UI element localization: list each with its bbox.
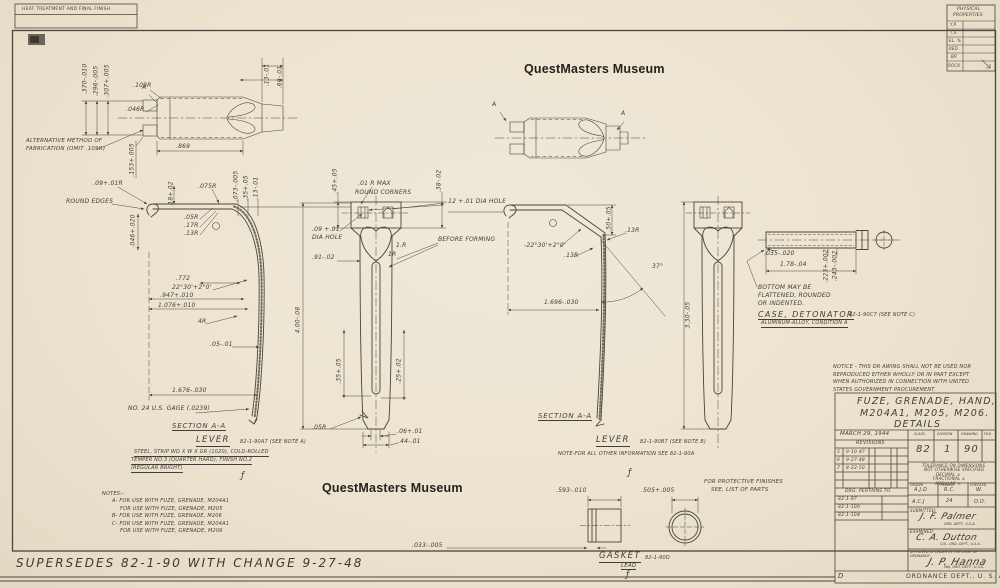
dim-label: .370-.010 (83, 64, 90, 95)
protective-finish-note: FOR PROTECTIVE FINISHES (704, 479, 783, 485)
revision-row: 6 (837, 458, 840, 463)
part-ref-lever-a: 82-1-90A7 (SEE NOTE A) (240, 440, 306, 446)
dim-label: .073-.005 (234, 171, 241, 202)
watermark-bottom: QuestMasters Museum (322, 481, 463, 495)
dim-label: BEFORE FORMING (438, 237, 495, 244)
pertains-row: 82-1-100 (838, 505, 860, 510)
note-line: B- FOR USE WITH FUZE, GRENADE, M206 (112, 514, 222, 520)
material-note: STEEL, STRIP WD X W X GR (1020), COLD-RO… (134, 450, 269, 457)
cell-value: A.C.J (912, 500, 925, 506)
prop-row: BR (951, 55, 957, 60)
dim-label: .25+.02 (397, 358, 404, 384)
approved-label: ORDNANCE: (910, 555, 931, 559)
dim-label: 1.676-.030 (172, 388, 207, 395)
dim-label: 1.076+.010 (158, 303, 196, 310)
revision-row: 9-10-47 (846, 450, 865, 455)
dim-label: .046R (126, 107, 145, 114)
notice-text: NOTICE - THIS DR AWING SHALL NOT BE USED… (833, 365, 971, 371)
part-title-case: CASE, DETONATOR (758, 310, 854, 320)
dim-label: 4R (198, 319, 206, 326)
prop-row: RED. (949, 47, 959, 52)
alt-method-note: ALTERNATIVE METHOD OF (26, 138, 102, 144)
part-ref-gasket: 82-1-90D (645, 556, 670, 562)
physical-properties-title: PHYSICAL (957, 7, 980, 12)
cell-value: A.J.D (914, 488, 927, 494)
case-note: BOTTOM MAY BE (758, 285, 811, 292)
dim-label: .12 +.01 DIA HOLE (446, 199, 506, 206)
dim-label: 3.30-.05 (686, 302, 693, 329)
heat-treatment-box-label: HEAT TREATMENT AND FINAL FINISH (22, 7, 110, 12)
cell-value: O.O. (974, 500, 985, 506)
material-note: ALUMINUM-ALLOY, CONDITION A (761, 321, 848, 328)
submitted-org: ORD. DEPT., U.S.A. (944, 523, 976, 527)
gage-note: NO. 24 U.S. GAGE (.0239) (128, 406, 210, 413)
division-label: DIVISION (937, 433, 952, 437)
dim-label: .13-.01 (254, 177, 261, 200)
dim-label: .947+.010 (160, 293, 194, 300)
note-line: C- FOR USE WITH FUZE, GRENADE, M204A1 (112, 522, 229, 528)
dim-label: .593-.010 (556, 488, 587, 495)
prop-row: EL. % (949, 39, 961, 44)
revisions-header: REVISIONS (856, 441, 885, 447)
submitted-signature: J. F. Palmer (919, 512, 978, 522)
drawing-title: DETAILS (894, 420, 941, 431)
dim-label: 37° (652, 264, 663, 271)
dim-label: .09 +.01 (312, 227, 340, 234)
section-marker-a: A (492, 102, 496, 109)
notice-text: WHEN AUTHORIZED IN CONNECTION WITH UNITE… (833, 380, 969, 386)
prop-row: Y.P. (950, 23, 957, 28)
dim-label: .033-.005 (412, 543, 443, 550)
notice-text: REPRODUCED EITHER WHOLLY OR IN PART EXCE… (833, 373, 969, 379)
drawing-date: MARCH 29, 1944 (840, 431, 889, 437)
case-note: FLATTENED, ROUNDED (758, 293, 831, 300)
dim-label: .153+.005 (130, 143, 137, 177)
part-title-gasket: GASKET (599, 552, 641, 563)
dim-label: .09+.01R (93, 181, 123, 188)
revision-row: 8-22-50 (846, 466, 865, 471)
dim-label: 1.R (396, 243, 407, 250)
drawing-no-label: DRAWING (961, 433, 978, 437)
pertains-row: 82-1-104 (838, 513, 860, 518)
part-ref-lever-b: 82-1-90B7 (SEE NOTE B) (640, 440, 706, 446)
revision-row: 7 (837, 466, 840, 471)
note-line: FOR USE WITH FUZE, GRENADE, M205 (120, 507, 223, 513)
drawing-title: FUZE, GRENADE, HAND, (857, 397, 996, 408)
dim-label: .17R (184, 223, 199, 230)
dim-label: .075R (198, 184, 217, 191)
section-marker-a: A (621, 111, 625, 118)
dim-label: 22°30'+2°0' (172, 285, 211, 292)
dim-label: .91-.02 (312, 255, 335, 262)
dim-label: .01 R MAX (358, 181, 391, 188)
case-note: OR INDENTED. (758, 301, 804, 308)
examined-org: COL. ORD. DEPT., U.S.A. (940, 543, 981, 547)
notice-text: STATES GOVERNMENT PROCUREMENT. (833, 388, 936, 394)
dim-label: ROUND CORNERS (355, 190, 411, 197)
revision-row: 9-27-48 (846, 458, 865, 463)
dim-label: .44-.01 (398, 439, 421, 446)
dim-label: 1.78-.04 (780, 262, 807, 269)
alt-method-note: FABRICATION (OMIT .109R) (26, 146, 105, 152)
division-value: 1 (944, 444, 951, 456)
finish-mark: ƒ (626, 570, 629, 580)
supersedes-note: SUPERSEDES 82-1-90 WITH CHANGE 9-27-48 (16, 557, 363, 571)
file-label: FILE- (984, 433, 992, 437)
dim-label: ROUND EDGES (66, 199, 113, 206)
dim-label: 1.696-.030 (544, 300, 579, 307)
physical-properties-title2: PROPERTIES (953, 13, 983, 18)
dim-label: 1R (388, 252, 396, 259)
dim-label: .05R (312, 425, 327, 432)
dim-label: .772 (176, 276, 190, 283)
dim-label: .13R (564, 253, 579, 260)
dim-label: .06+.01 (397, 429, 423, 436)
class-label: CLASS (914, 433, 925, 437)
drawing-sheet: QuestMasters Museum QuestMasters Museum … (0, 0, 1000, 588)
dim-label: .307+.005 (105, 64, 112, 98)
dim-label: .046+.020 (131, 214, 138, 248)
dim-label: .296-.005 (94, 66, 101, 97)
notes-header: NOTES:- (102, 492, 124, 498)
pertains-header: DRG. PERTAINS TO (845, 489, 891, 494)
dim-label: .035-.020 (764, 251, 795, 258)
section-title: SECTION A-A (172, 422, 226, 431)
section-title: SECTION A-A (538, 412, 592, 421)
dim-label: .505+.005 (641, 488, 675, 495)
dim-label: .45+.05 (333, 168, 340, 194)
cell-value: 24 (946, 499, 953, 505)
dim-label: .35+.05 (337, 358, 344, 384)
drawing-no-value: 90 (964, 444, 979, 456)
lever-b-note: NOTE-FOR ALL OTHER INFORMATION SEE 82-1-… (558, 452, 694, 458)
part-title-lever-a: LEVER (196, 436, 230, 447)
material-note: (REGULAR BRIGHT) (131, 466, 183, 473)
material-note: TEMPER NO.3 (QUARTER HARD), FINISH NO.2 (131, 458, 252, 465)
watermark-top: QuestMasters Museum (524, 62, 665, 76)
part-ref-case: 82-1-90C7 (SEE NOTE C) (849, 313, 915, 319)
dim-label: .13R (184, 231, 199, 238)
dim-label: .13-.01 (265, 64, 272, 87)
finish-mark: ƒ (241, 471, 244, 481)
dim-label: .05-.01 (210, 342, 233, 349)
finish-mark: ƒ (628, 468, 631, 478)
dim-label: .869 (176, 144, 190, 151)
prop-row: ROCK (948, 64, 960, 69)
dim-label: .13R (625, 228, 640, 235)
protective-finish-note: SEE, LIST OF PARTS (711, 487, 769, 493)
dim-label: .05R (184, 215, 199, 222)
section-marker-a: A (142, 85, 146, 92)
revision-row: 5 (837, 450, 840, 455)
dim-label: 4.00-.08 (296, 307, 303, 334)
dim-label: .35+.05 (244, 175, 251, 201)
approved-org: MAJ. ORD. DEPT., U.S.A. (944, 566, 984, 570)
dim-label: DIA HOLE (312, 235, 342, 242)
dim-label: .50+.05 (607, 206, 614, 232)
dim-label: .223+.002 (824, 249, 831, 283)
dim-label: .69-.01 (278, 66, 285, 89)
note-line: A- FOR USE WITH FUZE, GRENADE, M204A1 (112, 499, 229, 505)
cell-value: W. (976, 488, 983, 494)
dim-label: -22°30'+2°0' (524, 243, 566, 250)
prop-row: T.S. (950, 31, 958, 36)
cell-value: R.C. (944, 488, 955, 494)
zone-letter: D (838, 572, 844, 580)
ordnance-dept-label: ORDNANCE DEPT., U. S. A. (906, 573, 1000, 580)
dim-label: .18+.02 (169, 181, 176, 207)
part-title-lever-b: LEVER (596, 436, 630, 447)
dim-label: .243-.002 (833, 251, 840, 282)
dim-label: .38-.02 (437, 170, 444, 193)
note-line: FOR USE WITH FUZE, GRENADE, M206 (120, 529, 223, 535)
pertains-row: 82-1-87 (838, 497, 857, 502)
class-value: 82 (916, 444, 931, 456)
